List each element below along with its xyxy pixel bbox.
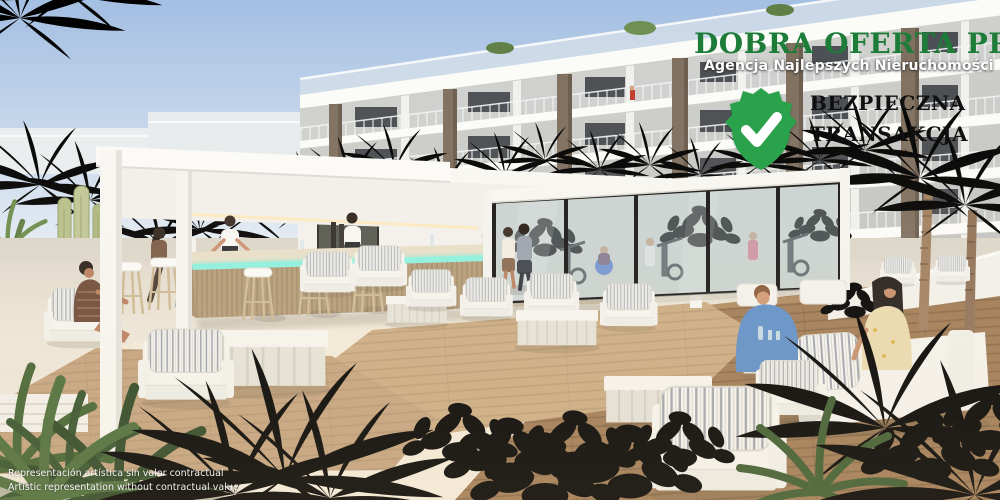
resort-scene xyxy=(0,0,1000,500)
shield-check-icon xyxy=(724,86,798,174)
legal-disclaimer: Representación artística sin valor contr… xyxy=(8,467,239,495)
property-render-image: DOBRA OFERTA PRO Agencja Najlepszych Nie… xyxy=(0,0,1000,500)
agency-wordmark: DOBRA OFERTA PRO xyxy=(694,27,996,60)
agency-tagline: Agencja Najlepszych Nieruchomości xyxy=(704,58,988,74)
disclaimer-line-es: Representación artística sin valor contr… xyxy=(8,467,239,481)
safe-transaction-badge: BEZPIECZNA TRANSAKCJA xyxy=(724,86,968,174)
badge-line2: TRANSAKCJA xyxy=(810,119,968,150)
badge-text: BEZPIECZNA TRANSAKCJA xyxy=(810,88,968,150)
disclaimer-line-en: Artistic representation without contract… xyxy=(8,481,239,495)
badge-line1: BEZPIECZNA xyxy=(810,88,968,119)
